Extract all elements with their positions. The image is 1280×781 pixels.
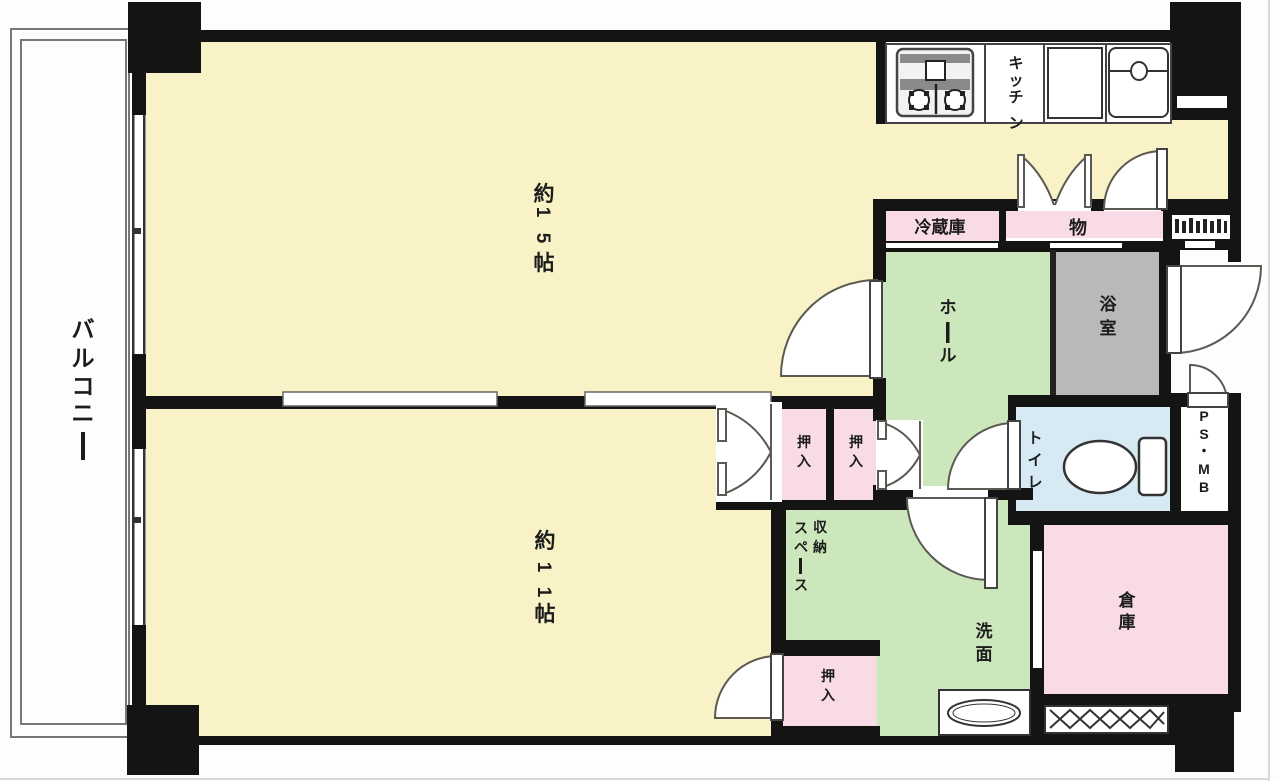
- svg-text:トイレ: トイレ: [1027, 430, 1042, 491]
- svg-text:冷蔵庫: 冷蔵庫: [915, 217, 966, 237]
- svg-text:キッチン: キッチン: [1008, 55, 1023, 132]
- svg-text:物: 物: [1069, 217, 1087, 238]
- svg-text:5: 5: [532, 233, 553, 244]
- svg-text:1: 1: [532, 207, 553, 218]
- svg-text:1: 1: [533, 562, 554, 573]
- svg-text:1: 1: [533, 587, 554, 598]
